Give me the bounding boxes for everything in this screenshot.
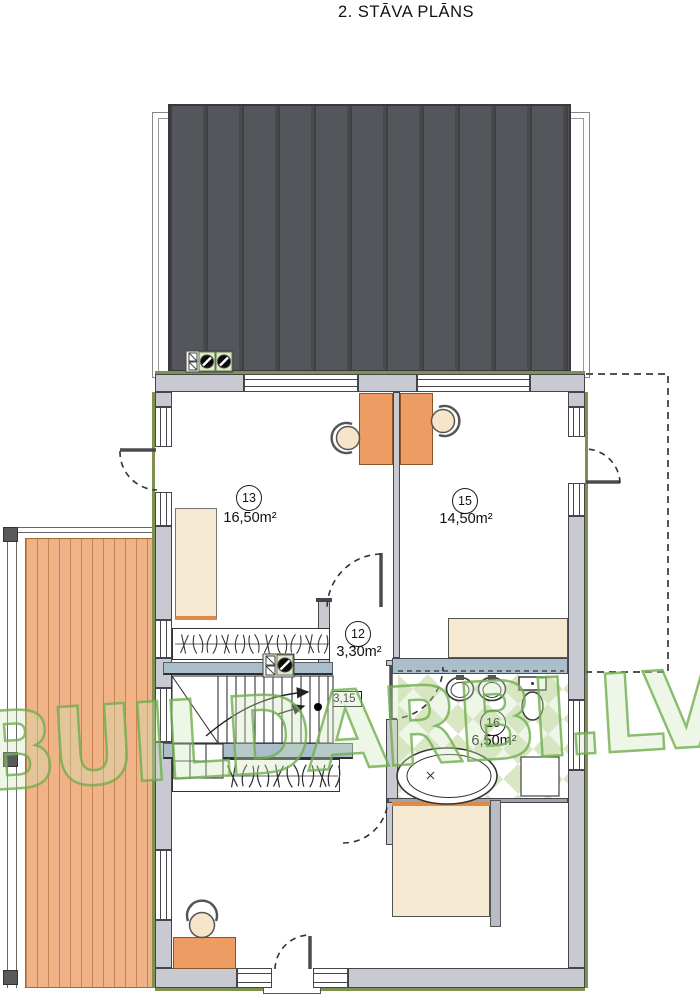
wall-segment	[568, 392, 585, 407]
chair	[432, 406, 460, 436]
wardrobe-hanger-strip	[172, 759, 340, 792]
bed-headboard	[490, 800, 501, 927]
window	[237, 968, 272, 988]
room-area-label: 14,50m²	[439, 511, 492, 527]
page-title: 2. STĀVA PLĀNS	[116, 3, 696, 22]
bathroom-window	[568, 700, 585, 770]
floor-plan-canvas: 2. STĀVA PLĀNS	[0, 0, 700, 994]
balcony-railing-top	[7, 527, 156, 533]
window	[244, 374, 358, 392]
bathroom-counter	[392, 658, 568, 674]
wall-segment	[155, 968, 237, 988]
bed	[392, 805, 490, 917]
room-number-badge: 13	[236, 485, 262, 511]
wall-segment	[155, 920, 172, 968]
desk	[173, 937, 236, 969]
window	[417, 374, 530, 392]
balcony-deck	[25, 538, 155, 988]
insulation-line	[155, 988, 585, 991]
window	[155, 850, 172, 920]
wall-segment	[568, 770, 585, 968]
wall-segment	[155, 526, 172, 620]
lower-roof-dashed-outline	[586, 374, 668, 672]
window	[155, 492, 172, 526]
staircase	[172, 676, 333, 743]
chair	[187, 901, 217, 938]
chair	[332, 423, 360, 453]
balcony-door-window	[155, 688, 172, 742]
room-number: 12	[351, 627, 365, 641]
door-threshold	[263, 988, 321, 994]
stair-direction-arrow	[278, 706, 304, 714]
window	[568, 407, 585, 437]
interior-wall	[393, 392, 400, 658]
window	[155, 407, 172, 447]
window	[155, 620, 172, 658]
room-number: 13	[242, 491, 256, 505]
wall-segment	[348, 968, 585, 988]
roof-panels	[168, 104, 571, 372]
room-area-label: 6,50m²	[471, 733, 516, 749]
room-number: 15	[458, 494, 472, 508]
room-area-label: 3,30m²	[336, 644, 381, 660]
wardrobe-hanger-strip	[172, 628, 330, 660]
window	[313, 968, 348, 988]
shelf-bar	[163, 743, 353, 759]
wardrobe	[175, 508, 217, 620]
bed-pillow-edge	[392, 802, 490, 806]
wall-segment	[568, 516, 585, 700]
window	[568, 483, 585, 516]
wall-segment	[155, 392, 172, 407]
desk	[359, 393, 393, 465]
wall-segment	[530, 374, 585, 392]
wardrobe	[448, 618, 568, 658]
wall-segment	[358, 374, 417, 392]
railing-post	[3, 527, 18, 542]
railing-post	[3, 752, 18, 767]
insulation-line	[585, 392, 588, 988]
desk	[400, 393, 433, 465]
wall-cap	[316, 598, 332, 602]
shelf-bar	[163, 662, 333, 675]
wall-segment	[155, 374, 244, 392]
railing-post	[3, 970, 18, 985]
stair-direction-arrow	[206, 692, 308, 736]
level-marker: +3,15	[320, 691, 362, 707]
room-number: 16	[486, 716, 500, 730]
room-area-label: 16,50m²	[223, 510, 276, 526]
